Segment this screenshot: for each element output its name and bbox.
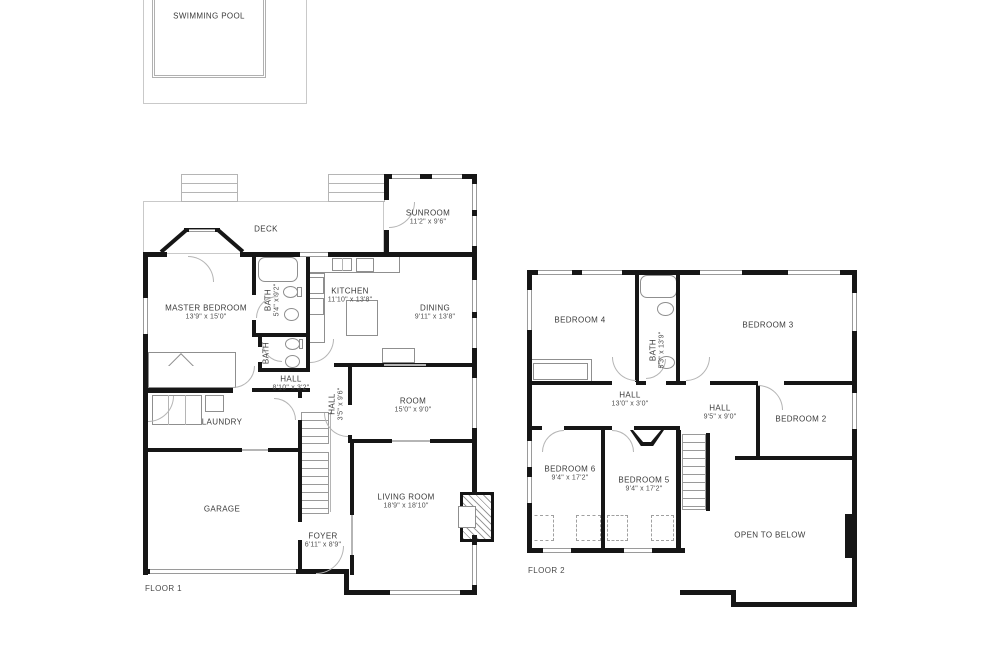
wall-segment bbox=[252, 252, 256, 295]
wall-segment bbox=[527, 381, 612, 385]
room-label-laundry: LAUNDRY bbox=[202, 418, 243, 427]
door-arc bbox=[542, 430, 564, 452]
wall-segment bbox=[845, 514, 857, 558]
wall-segment bbox=[143, 448, 242, 452]
room-label-hall-upper: HALL 13'0" x 3'0" bbox=[612, 391, 649, 408]
window bbox=[472, 184, 477, 210]
window bbox=[700, 270, 742, 275]
room-label-bath1: BATH 5'4" x 9'2" bbox=[264, 284, 281, 317]
window bbox=[527, 441, 532, 467]
toilet-tank bbox=[299, 339, 303, 349]
fireplace-firebox bbox=[458, 506, 476, 528]
room-name: LAUNDRY bbox=[202, 418, 243, 427]
toilet bbox=[283, 286, 298, 298]
room-name: BEDROOM 5 bbox=[618, 476, 669, 485]
room-name: HALL bbox=[612, 391, 649, 400]
room-label-hall-lower: HALL 9'5" x 9'0" bbox=[704, 404, 737, 421]
wall-segment bbox=[735, 456, 853, 460]
bathtub bbox=[258, 257, 298, 282]
wall-segment bbox=[298, 452, 302, 522]
room-label-bedroom3: BEDROOM 3 bbox=[742, 321, 793, 330]
pool-label-text: SWIMMING POOL bbox=[173, 12, 245, 21]
sink bbox=[657, 302, 674, 316]
toilet-tank bbox=[297, 287, 302, 297]
window bbox=[390, 590, 460, 595]
cabinet-line bbox=[185, 395, 186, 425]
window bbox=[582, 270, 622, 275]
room-dims: 15'0" x 9'0" bbox=[395, 407, 432, 414]
window bbox=[852, 393, 857, 429]
wall-segment bbox=[143, 388, 233, 393]
room-name: ROOM bbox=[395, 397, 432, 406]
room-label-room: ROOM 15'0" x 9'0" bbox=[395, 397, 432, 414]
opening-line bbox=[351, 515, 353, 555]
wall-segment bbox=[258, 368, 310, 372]
room-name: HALL bbox=[273, 375, 310, 384]
window bbox=[788, 270, 840, 275]
room-dims: 3'5" x 9'6" bbox=[338, 388, 345, 421]
room-label-bedroom6: BEDROOM 6 9'4" x 17'2" bbox=[544, 465, 595, 482]
wall-segment bbox=[350, 439, 392, 443]
wall-segment bbox=[784, 381, 853, 385]
room-label-hall1: HALL 8'10" x 3'2" bbox=[273, 375, 310, 392]
room-dims: 9'5" x 9'0" bbox=[704, 414, 737, 421]
wall-segment bbox=[680, 590, 736, 595]
appliance bbox=[309, 298, 324, 315]
room-name: KITCHEN bbox=[328, 287, 373, 296]
room-label-bedroom4: BEDROOM 4 bbox=[554, 316, 605, 325]
room-label-open-to-below: OPEN TO BELOW bbox=[734, 531, 805, 540]
window bbox=[852, 293, 857, 331]
window bbox=[624, 548, 652, 553]
window bbox=[543, 548, 571, 553]
room-name: FOYER bbox=[305, 532, 341, 541]
wall-segment bbox=[527, 426, 542, 430]
floor2-title: FLOOR 2 bbox=[528, 566, 565, 575]
sink bbox=[285, 355, 300, 368]
wall-segment bbox=[634, 426, 680, 430]
wall-segment bbox=[636, 381, 646, 385]
room-dims: 13'0" x 3'0" bbox=[612, 401, 649, 408]
room-dims: 9'4" x 17'2" bbox=[544, 475, 595, 482]
appliance bbox=[309, 277, 324, 294]
wall-segment bbox=[350, 555, 354, 575]
room-label-living-room: LIVING ROOM 18'9" x 18'10" bbox=[377, 493, 434, 510]
pool-label: SWIMMING POOL bbox=[173, 12, 245, 21]
window bbox=[300, 252, 328, 257]
window bbox=[189, 229, 215, 232]
door-arc bbox=[274, 398, 296, 420]
room-name: BATH bbox=[264, 284, 273, 317]
room-label-hall2: HALL 3'5" x 9'6" bbox=[328, 388, 345, 421]
room-name: SUNROOM bbox=[406, 209, 450, 218]
door-arc bbox=[612, 430, 634, 452]
window bbox=[472, 216, 477, 246]
room-dims: 13'9" x 15'0" bbox=[165, 314, 247, 321]
deck-steps bbox=[181, 174, 238, 202]
room-name: BATH bbox=[262, 342, 271, 364]
closet-inner bbox=[533, 363, 588, 380]
room-name: OPEN TO BELOW bbox=[734, 531, 805, 540]
room-label-bath-floor2: BATH 5'3" x 13'9" bbox=[649, 332, 666, 369]
toilet bbox=[285, 338, 300, 350]
window bbox=[472, 545, 477, 585]
wall-segment bbox=[350, 443, 354, 515]
wall-segment bbox=[430, 439, 477, 443]
window bbox=[472, 378, 477, 428]
room-label-sunroom: SUNROOM 11'2" x 9'6" bbox=[406, 209, 450, 226]
closet-dashed bbox=[607, 515, 628, 541]
door-arc bbox=[233, 366, 255, 388]
window bbox=[472, 280, 477, 312]
wall-segment bbox=[731, 602, 857, 607]
window bbox=[143, 298, 148, 334]
floorplan-canvas: SWIMMING POOL DECK SUNROOM bbox=[0, 0, 1000, 667]
door-arc bbox=[758, 385, 783, 410]
window bbox=[392, 174, 420, 179]
room-label-bedroom2: BEDROOM 2 bbox=[775, 415, 826, 424]
kitchen-counter bbox=[308, 256, 400, 273]
wall-segment bbox=[676, 270, 680, 382]
wall-segment bbox=[268, 448, 302, 452]
wall-segment bbox=[666, 381, 686, 385]
closet-dashed bbox=[576, 515, 601, 541]
closet-dashed bbox=[529, 515, 554, 541]
door-arc bbox=[188, 256, 214, 282]
stove bbox=[356, 258, 374, 272]
window bbox=[538, 270, 572, 275]
room-name: DECK bbox=[254, 225, 278, 234]
closet-dashed bbox=[651, 515, 674, 541]
kitchen-sink-divider bbox=[342, 258, 343, 271]
wall-segment bbox=[348, 367, 352, 405]
room-name: DINING bbox=[415, 304, 455, 313]
room-dims: 9'11" x 13'8" bbox=[415, 314, 455, 321]
room-label-garage: GARAGE bbox=[204, 505, 240, 514]
dining-buffet bbox=[382, 348, 415, 363]
room-label-bedroom5: BEDROOM 5 9'4" x 17'2" bbox=[618, 476, 669, 493]
room-name: BEDROOM 6 bbox=[544, 465, 595, 474]
bed-pillow bbox=[162, 352, 198, 366]
window bbox=[150, 569, 296, 574]
stairs bbox=[301, 452, 329, 514]
room-dims: 18'9" x 18'10" bbox=[377, 503, 434, 510]
room-label-foyer: FOYER 6'11" x 8'9" bbox=[305, 532, 341, 549]
room-label-master-bedroom: MASTER BEDROOM 13'9" x 15'0" bbox=[165, 304, 247, 321]
room-dims: 5'3" x 13'9" bbox=[659, 332, 666, 369]
wall-segment bbox=[710, 381, 758, 385]
window bbox=[527, 290, 532, 330]
room-dims: 9'4" x 17'2" bbox=[618, 486, 669, 493]
room-label-bath2: BATH bbox=[262, 342, 271, 364]
room-name: HALL bbox=[328, 388, 337, 421]
wall-segment bbox=[240, 252, 477, 257]
room-name: BEDROOM 4 bbox=[554, 316, 605, 325]
room-dims: 11'10" x 13'8" bbox=[328, 297, 373, 304]
stairs bbox=[682, 434, 706, 510]
wall-segment bbox=[306, 363, 310, 367]
laundry-unit bbox=[205, 395, 224, 412]
room-label-deck: DECK bbox=[254, 225, 278, 234]
window bbox=[527, 477, 532, 503]
door-arc bbox=[310, 339, 334, 363]
opening-line bbox=[392, 440, 430, 442]
room-name: BATH bbox=[649, 332, 658, 369]
room-name: GARAGE bbox=[204, 505, 240, 514]
opening-line bbox=[242, 449, 268, 451]
window bbox=[432, 174, 462, 179]
wall-segment bbox=[384, 230, 389, 256]
room-label-kitchen: KITCHEN 11'10" x 13'8" bbox=[328, 287, 373, 304]
room-name: BEDROOM 3 bbox=[742, 321, 793, 330]
window bbox=[472, 318, 477, 348]
opening-line bbox=[384, 364, 426, 366]
door-arc bbox=[612, 357, 636, 381]
room-name: BEDROOM 2 bbox=[775, 415, 826, 424]
wall-segment bbox=[298, 540, 302, 574]
door-arc bbox=[686, 357, 710, 381]
wall-segment bbox=[601, 430, 605, 550]
deck-steps bbox=[328, 174, 385, 202]
floor1-title: FLOOR 1 bbox=[145, 584, 182, 593]
room-dims: 8'10" x 3'2" bbox=[273, 385, 310, 392]
room-name: HALL bbox=[704, 404, 737, 413]
bathtub bbox=[640, 275, 677, 298]
room-label-dining: DINING 9'11" x 13'8" bbox=[415, 304, 455, 321]
wall-segment bbox=[676, 430, 681, 550]
kitchen-island bbox=[346, 300, 378, 336]
room-name: LIVING ROOM bbox=[377, 493, 434, 502]
room-dims: 6'11" x 8'9" bbox=[305, 542, 341, 549]
room-dims: 11'2" x 9'6" bbox=[406, 219, 450, 226]
sink bbox=[284, 308, 299, 321]
wall-segment bbox=[706, 433, 710, 511]
room-name: MASTER BEDROOM bbox=[165, 304, 247, 313]
room-dims: 5'4" x 9'2" bbox=[274, 284, 281, 317]
